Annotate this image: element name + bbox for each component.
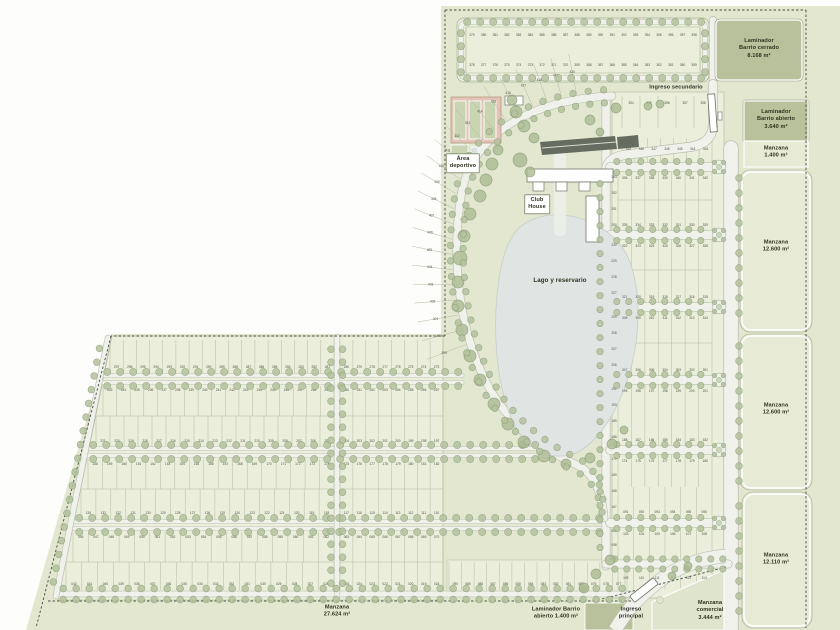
svg-text:109: 109 [623,576,629,580]
svg-text:395: 395 [656,33,662,37]
svg-text:383: 383 [516,33,522,37]
svg-text:338: 338 [649,176,655,180]
svg-text:189: 189 [611,419,617,423]
svg-text:114: 114 [383,511,388,515]
svg-text:252: 252 [370,388,376,392]
svg-text:065: 065 [370,535,376,539]
svg-text:169: 169 [611,473,617,477]
svg-text:092: 092 [639,510,645,514]
svg-text:238: 238 [175,388,181,392]
svg-text:111: 111 [655,576,660,580]
label-manzana-12110: Manzana 12.110 m² [763,553,789,568]
svg-text:397: 397 [680,33,686,37]
svg-text:391: 391 [610,33,616,37]
svg-text:328: 328 [703,244,709,248]
svg-text:399: 399 [442,351,448,355]
svg-text:414: 414 [477,109,483,113]
svg-text:113: 113 [686,576,691,580]
svg-text:401: 401 [433,317,439,321]
svg-text:070: 070 [434,535,440,539]
tennis-court [469,101,481,139]
svg-text:394: 394 [645,33,651,37]
label-manzana-comercial: Manzana comercial 3.444 m² [696,600,723,622]
svg-text:053: 053 [185,535,191,539]
svg-text:179: 179 [689,459,695,463]
svg-text:198: 198 [662,389,668,393]
club-house-building [527,169,613,182]
svg-text:311: 311 [662,316,667,320]
svg-text:409: 409 [434,180,440,184]
svg-text:354: 354 [628,101,634,105]
svg-text:180: 180 [408,462,414,466]
svg-text:280: 280 [344,365,350,369]
svg-text:188: 188 [622,438,628,442]
svg-text:203: 203 [357,439,363,443]
svg-text:127: 127 [190,511,196,515]
svg-text:252: 252 [611,191,617,195]
spillway-channel [554,150,566,236]
label-ingreso-secundario: Ingreso secundario [649,84,702,91]
svg-text:413: 413 [465,121,471,125]
svg-text:095: 095 [686,510,692,514]
svg-text:365: 365 [621,63,627,67]
label-laminador-abierto-norte: Laminador Barrio abierto 3.640 m² [757,109,795,131]
svg-text:180: 180 [703,459,709,463]
svg-text:329: 329 [703,223,709,227]
svg-text:035: 035 [182,582,188,586]
svg-text:405: 405 [427,248,433,252]
svg-text:130: 130 [145,511,151,515]
svg-text:415: 415 [491,99,497,103]
label-manzana-27624: Manzana 27.624 m² [324,605,350,620]
svg-text:201: 201 [703,389,709,393]
svg-text:121: 121 [279,511,285,515]
svg-text:169: 169 [252,462,258,466]
svg-text:240: 240 [202,388,208,392]
svg-text:069: 069 [421,535,427,539]
svg-text:054: 054 [201,535,207,539]
svg-text:059: 059 [278,535,284,539]
svg-text:371: 371 [551,63,557,67]
svg-text:067: 067 [395,535,401,539]
svg-text:345: 345 [677,147,683,151]
svg-text:356: 356 [664,101,670,105]
svg-text:030: 030 [260,582,266,586]
svg-text:201: 201 [382,439,388,443]
svg-text:064: 064 [357,535,363,539]
svg-text:034: 034 [197,582,203,586]
svg-text:411: 411 [446,149,451,153]
svg-text:060: 060 [293,535,299,539]
svg-text:196: 196 [635,389,641,393]
svg-text:358: 358 [700,101,706,105]
svg-text:239: 239 [189,388,195,392]
svg-text:096: 096 [702,510,708,514]
label-manzana-12600-a: Manzana 12.600 m² [763,240,789,255]
svg-text:343: 343 [703,147,709,151]
svg-text:398: 398 [691,33,697,37]
svg-text:110: 110 [434,511,439,515]
svg-text:327: 327 [689,244,695,248]
svg-text:114: 114 [702,576,707,580]
svg-text:208: 208 [611,331,617,335]
svg-text:178: 178 [676,459,682,463]
svg-text:325: 325 [662,244,668,248]
svg-text:160: 160 [122,462,128,466]
svg-text:273: 273 [434,365,440,369]
svg-text:159: 159 [107,462,113,466]
svg-text:382: 382 [504,33,510,37]
svg-text:251: 251 [611,207,617,211]
svg-text:093: 093 [655,510,661,514]
svg-text:110: 110 [639,576,644,580]
svg-text:276: 276 [395,365,401,369]
svg-text:380: 380 [481,33,487,37]
svg-text:323: 323 [635,244,641,248]
svg-text:213: 213 [212,439,218,443]
svg-text:195: 195 [622,389,628,393]
svg-text:344: 344 [690,147,696,151]
svg-text:104: 104 [639,532,645,536]
svg-text:310: 310 [649,316,655,320]
svg-text:182: 182 [703,438,709,442]
site-plan-svg: 3793803813823833843853863873883893903913… [0,0,840,630]
svg-text:176: 176 [649,459,655,463]
svg-text:403: 403 [428,282,434,286]
svg-text:049: 049 [124,535,130,539]
svg-text:313: 313 [689,316,695,320]
label-laminador-cerrado: Laminador Barrio cerrado 8.168 m² [739,38,779,60]
svg-text:048: 048 [109,535,115,539]
svg-text:408: 408 [431,197,437,201]
svg-text:404: 404 [427,265,433,269]
svg-text:198: 198 [421,439,427,443]
svg-text:309: 309 [635,316,641,320]
svg-text:374: 374 [516,63,522,67]
svg-text:066: 066 [382,535,388,539]
svg-text:381: 381 [493,33,499,37]
svg-text:175: 175 [635,459,641,463]
svg-text:107: 107 [686,532,692,536]
svg-text:346: 346 [664,147,670,151]
svg-text:116: 116 [357,511,362,515]
svg-text:375: 375 [504,63,510,67]
svg-text:098: 098 [611,543,617,547]
svg-text:389: 389 [586,33,592,37]
svg-text:111: 111 [421,511,426,515]
svg-text:112: 112 [408,511,413,515]
svg-text:385: 385 [539,33,545,37]
svg-text:091: 091 [623,510,629,514]
svg-text:362: 362 [656,63,662,67]
svg-text:168: 168 [237,462,243,466]
svg-text:326: 326 [676,244,682,248]
label-laminador-abierto-sur: Laminador Barrio abierto 1.400 m² [532,607,580,622]
svg-text:188: 188 [611,435,617,439]
svg-text:390: 390 [598,33,604,37]
svg-text:324: 324 [649,244,655,248]
svg-text:134: 134 [86,511,92,515]
svg-text:039: 039 [119,582,125,586]
svg-text:402: 402 [430,300,436,304]
svg-text:103: 103 [623,532,629,536]
svg-text:370: 370 [563,63,569,67]
svg-text:359: 359 [691,63,697,67]
svg-text:366: 366 [610,63,616,67]
svg-text:063: 063 [344,535,350,539]
svg-text:347: 347 [651,147,657,151]
svg-text:396: 396 [668,33,674,37]
svg-text:420: 420 [570,70,576,74]
svg-text:314: 314 [703,316,709,320]
svg-text:360: 360 [680,63,686,67]
svg-text:123: 123 [249,511,255,515]
svg-text:341: 341 [689,176,695,180]
svg-text:342: 342 [703,176,709,180]
svg-text:038: 038 [134,582,140,586]
svg-text:179: 179 [395,462,401,466]
svg-text:229: 229 [611,259,617,263]
svg-text:237: 237 [161,388,167,392]
svg-text:117: 117 [344,511,349,515]
svg-text:348: 348 [639,147,645,151]
svg-text:361: 361 [668,63,674,67]
svg-text:386: 386 [551,33,557,37]
label-ingreso-principal: Ingreso principal [619,607,643,622]
svg-text:162: 162 [150,462,156,466]
label-area-deportivo: Área deportivo [446,153,480,173]
svg-text:200: 200 [689,389,695,393]
svg-text:335: 335 [622,223,628,227]
svg-text:190: 190 [611,403,617,407]
svg-text:210: 210 [254,439,260,443]
svg-text:068: 068 [408,535,414,539]
svg-text:337: 337 [635,176,641,180]
svg-text:047: 047 [93,535,99,539]
svg-text:363: 363 [645,63,651,67]
svg-text:400: 400 [437,334,443,338]
svg-text:275: 275 [408,365,414,369]
svg-text:308: 308 [622,316,628,320]
svg-text:274: 274 [421,365,427,369]
svg-text:301: 301 [703,368,709,372]
svg-text:212: 212 [226,439,232,443]
svg-text:315: 315 [703,295,709,299]
svg-text:094: 094 [670,510,676,514]
svg-text:170: 170 [266,462,272,466]
svg-text:241: 241 [216,388,222,392]
svg-text:384: 384 [528,33,534,37]
svg-text:336: 336 [622,176,628,180]
svg-text:340: 340 [676,176,682,180]
svg-text:171: 171 [281,462,287,466]
svg-text:349: 349 [626,147,632,151]
svg-text:412: 412 [454,134,460,138]
svg-text:105: 105 [655,532,661,536]
svg-text:377: 377 [481,63,487,67]
svg-text:392: 392 [621,33,627,37]
svg-text:058: 058 [262,535,268,539]
svg-text:177: 177 [662,459,668,463]
label-manzana-12600-b: Manzana 12.600 m² [763,403,789,418]
svg-text:373: 373 [528,63,534,67]
svg-text:106: 106 [670,532,676,536]
svg-text:206: 206 [611,363,617,367]
svg-text:279: 279 [357,365,363,369]
svg-text:297: 297 [114,365,120,369]
svg-text:197: 197 [434,439,440,443]
svg-text:367: 367 [598,63,604,67]
svg-text:410: 410 [439,164,445,168]
svg-text:372: 372 [539,63,545,67]
svg-text:115: 115 [370,511,375,515]
label-manzana-1400: Manzana 1.400 m² [764,146,788,161]
svg-text:197: 197 [649,389,655,393]
svg-text:307: 307 [622,368,628,372]
svg-text:312: 312 [676,316,682,320]
svg-text:416: 416 [505,91,511,95]
svg-text:407: 407 [429,214,435,218]
svg-text:207: 207 [611,347,617,351]
svg-text:176: 176 [357,462,363,466]
svg-text:253: 253 [382,388,388,392]
svg-text:321: 321 [622,295,628,299]
svg-text:167: 167 [611,505,617,509]
svg-text:129: 129 [160,511,166,515]
svg-text:161: 161 [136,462,142,466]
svg-text:200: 200 [395,439,401,443]
label-club-house: Club House [524,194,550,214]
svg-text:181: 181 [421,462,427,466]
svg-text:199: 199 [676,389,682,393]
svg-text:122: 122 [264,511,270,515]
svg-text:364: 364 [633,63,639,67]
svg-text:113: 113 [395,511,400,515]
svg-text:178: 178 [382,462,388,466]
svg-text:227: 227 [611,291,617,295]
svg-text:174: 174 [622,459,628,463]
svg-text:369: 369 [574,63,580,67]
svg-text:251: 251 [357,388,363,392]
svg-text:379: 379 [469,33,475,37]
svg-text:163: 163 [165,462,171,466]
svg-text:322: 322 [622,244,628,248]
club-annex-building [586,196,599,242]
svg-text:339: 339 [662,176,668,180]
svg-text:199: 199 [408,439,414,443]
svg-text:177: 177 [370,462,376,466]
label-lago: Lago y reservario [533,277,586,285]
svg-text:168: 168 [611,489,617,493]
svg-text:368: 368 [586,63,592,67]
svg-text:128: 128 [175,511,181,515]
svg-text:242: 242 [229,388,235,392]
svg-text:278: 278 [370,365,376,369]
svg-text:029: 029 [276,582,282,586]
svg-text:417: 417 [521,84,527,88]
svg-text:387: 387 [563,33,569,37]
site-plan-canvas: 3793803813823833843853863873883893903913… [0,0,840,630]
svg-text:378: 378 [469,63,475,67]
svg-text:108: 108 [702,532,708,536]
svg-text:357: 357 [682,101,688,105]
svg-text:376: 376 [493,63,499,67]
svg-text:202: 202 [370,439,376,443]
svg-text:393: 393 [633,33,639,37]
svg-text:277: 277 [382,365,388,369]
svg-text:388: 388 [574,33,580,37]
svg-text:406: 406 [427,231,433,235]
svg-text:228: 228 [611,275,617,279]
svg-text:182: 182 [434,462,440,466]
svg-text:211: 211 [240,439,245,443]
